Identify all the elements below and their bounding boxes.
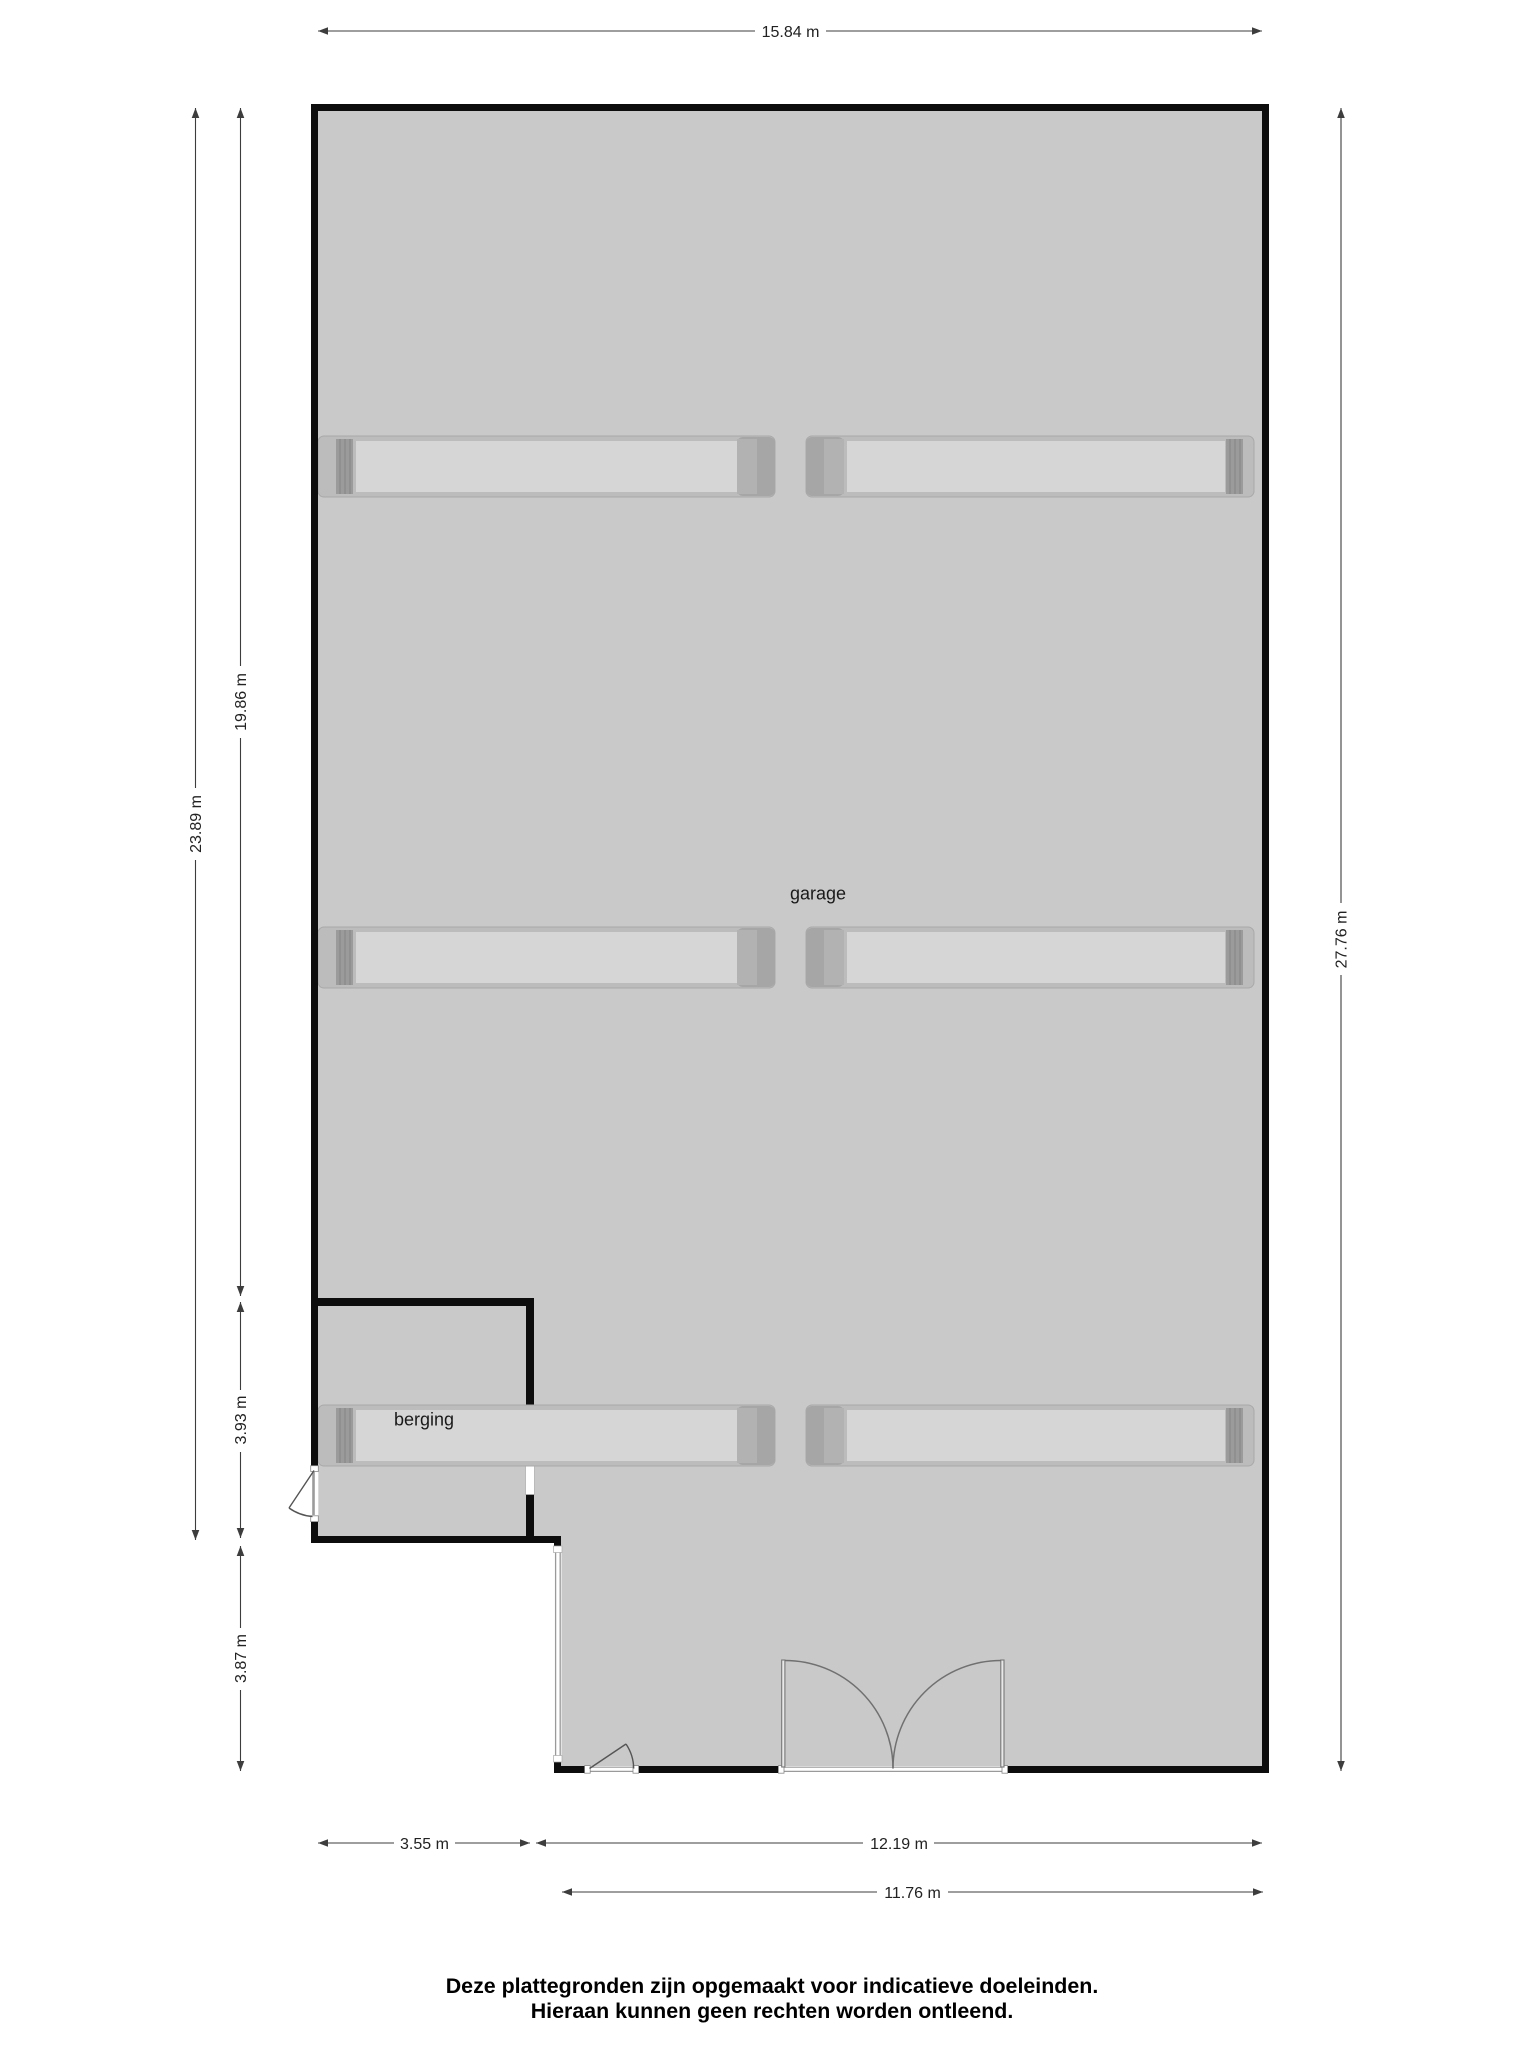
- svg-text:19.86 m: 19.86 m: [233, 673, 250, 731]
- svg-text:15.84 m: 15.84 m: [762, 24, 820, 41]
- svg-text:3.87 m: 3.87 m: [233, 1634, 250, 1683]
- svg-text:3.55 m: 3.55 m: [400, 1836, 449, 1853]
- svg-text:3.93 m: 3.93 m: [233, 1396, 250, 1445]
- svg-text:berging: berging: [394, 1410, 454, 1430]
- svg-text:garage: garage: [790, 884, 846, 904]
- svg-text:27.76 m: 27.76 m: [1334, 911, 1351, 969]
- svg-text:11.76 m: 11.76 m: [884, 1885, 941, 1902]
- svg-text:23.89 m: 23.89 m: [188, 795, 205, 853]
- svg-text:Hieraan kunnen geen rechten wo: Hieraan kunnen geen rechten worden ontle…: [531, 1999, 1014, 2023]
- svg-text:12.19 m: 12.19 m: [870, 1836, 928, 1853]
- svg-text:Deze plattegronden zijn opgema: Deze plattegronden zijn opgemaakt voor i…: [446, 1974, 1099, 1998]
